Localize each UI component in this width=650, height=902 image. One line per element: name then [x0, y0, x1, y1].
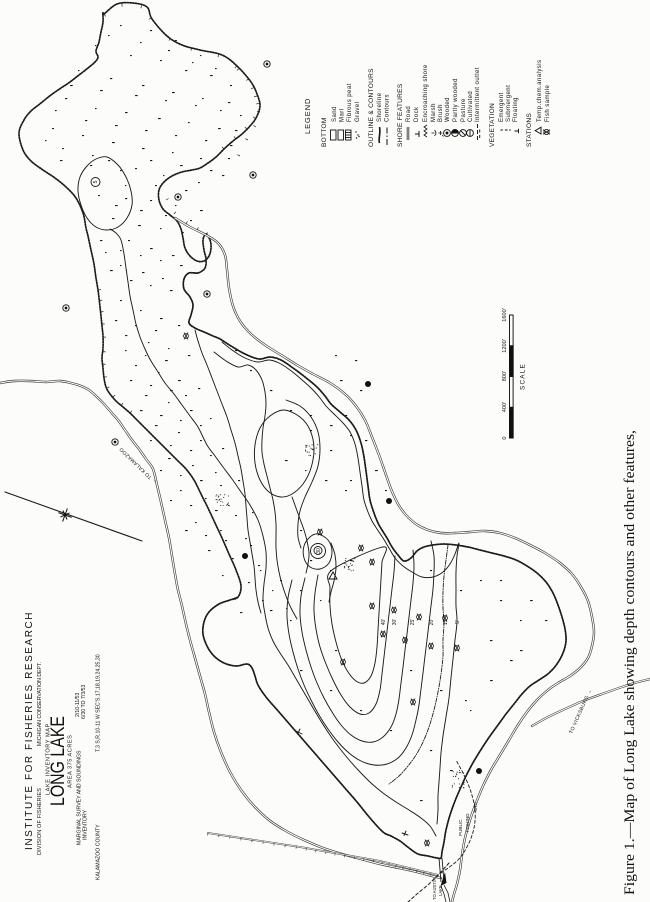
svg-text:Shoreline: Shoreline	[377, 92, 383, 122]
svg-text:Temp.chem.analysis: Temp.chem.analysis	[537, 60, 543, 122]
svg-text:VEGETATION: VEGETATION	[489, 103, 496, 147]
svg-text:PUBLIC: PUBLIC	[458, 819, 463, 836]
svg-text:40′: 40′	[381, 619, 387, 626]
svg-text:15′: 15′	[443, 619, 449, 626]
svg-text:1200′: 1200′	[502, 339, 508, 353]
svg-text:Marsh: Marsh	[431, 103, 437, 122]
svg-text:Pasture: Pasture	[461, 98, 467, 122]
svg-text:Intermittent outlet: Intermittent outlet	[475, 67, 481, 122]
svg-text:400′: 400′	[502, 402, 508, 412]
svg-text:800′: 800′	[502, 371, 508, 381]
svg-text:Wooded: Wooded	[445, 97, 451, 122]
svg-text:Floating: Floating	[513, 97, 519, 122]
svg-text:Cultivated: Cultivated	[468, 91, 474, 122]
svg-text:KALAMAZOO COUNTY: KALAMAZOO COUNTY	[96, 824, 102, 880]
svg-text:SCALE: SCALE	[520, 363, 527, 390]
svg-text:STATIONS: STATIONS	[526, 113, 533, 147]
svg-text:5: 5	[93, 180, 99, 183]
svg-text:Partly wooded: Partly wooded	[453, 78, 459, 122]
svg-text:Brush: Brush	[438, 104, 444, 122]
svg-text:SITE: SITE	[473, 802, 478, 812]
svg-text:0: 0	[502, 436, 508, 439]
svg-text:INVENTORY: INVENTORY	[83, 809, 89, 840]
svg-text:OUTLINE & CONTOURS: OUTLINE & CONTOURS	[368, 68, 375, 147]
svg-text:Sand: Sand	[332, 106, 338, 122]
svg-text:INSTITUTE FOR FISHERIES RESEAR: INSTITUTE FOR FISHERIES RESEARCH	[24, 611, 35, 850]
svg-text:6/30 TO 7/3/53: 6/30 TO 7/3/53	[81, 684, 87, 719]
svg-text:TO VICKSBURG →: TO VICKSBURG →	[568, 688, 593, 735]
svg-text:SHORE FEATURES: SHORE FEATURES	[397, 83, 404, 147]
svg-text:BOTTOM: BOTTOM	[321, 117, 328, 147]
svg-text:Road: Road	[406, 106, 412, 122]
svg-text:Dock: Dock	[414, 106, 420, 122]
svg-text:T.3 S,R.10-11 W SEC’S.17,18,1: T.3 S,R.10-11 W SEC’S.17,18,19,24,25,30	[96, 654, 102, 752]
svg-text:Figure 1.—Map of Long Lake sho: Figure 1.—Map of Long Lake showing depth…	[621, 430, 638, 895]
svg-text:Submergent: Submergent	[506, 85, 512, 122]
svg-text:AREA 375 ACRES: AREA 375 ACRES	[68, 735, 74, 788]
svg-text:LONG LAKE: LONG LAKE	[48, 716, 69, 806]
svg-text:MICHIGAN CONSERVATION DEPT.: MICHIGAN CONSERVATION DEPT.	[37, 662, 43, 746]
svg-text:Marl: Marl	[340, 109, 346, 122]
svg-text:30′: 30′	[392, 619, 398, 626]
svg-text:Emergent: Emergent	[499, 92, 505, 122]
svg-text:30: 30	[316, 548, 322, 554]
svg-text:20′: 20′	[429, 619, 435, 626]
svg-text:TO AUSTIN: TO AUSTIN	[432, 878, 437, 900]
svg-text:Gravel: Gravel	[355, 102, 361, 122]
svg-text:FISHING: FISHING	[465, 813, 470, 832]
svg-text:DIVISION OF FISHERIES: DIVISION OF FISHERIES	[37, 788, 43, 855]
svg-text:Fibrous peat: Fibrous peat	[347, 83, 353, 122]
svg-text:25′: 25′	[410, 619, 416, 626]
svg-text:Fish sample: Fish sample	[545, 84, 551, 122]
svg-text:Encroaching shore: Encroaching shore	[423, 64, 429, 122]
svg-text:Contours: Contours	[385, 94, 391, 122]
svg-text:5′: 5′	[455, 620, 461, 624]
svg-text:LAKE: LAKE	[438, 885, 443, 896]
svg-text:← TO KALAMAZOO: ← TO KALAMAZOO	[118, 446, 158, 485]
svg-text:1600′: 1600′	[502, 308, 508, 322]
svg-text:LEGEND: LEGEND	[303, 98, 312, 134]
